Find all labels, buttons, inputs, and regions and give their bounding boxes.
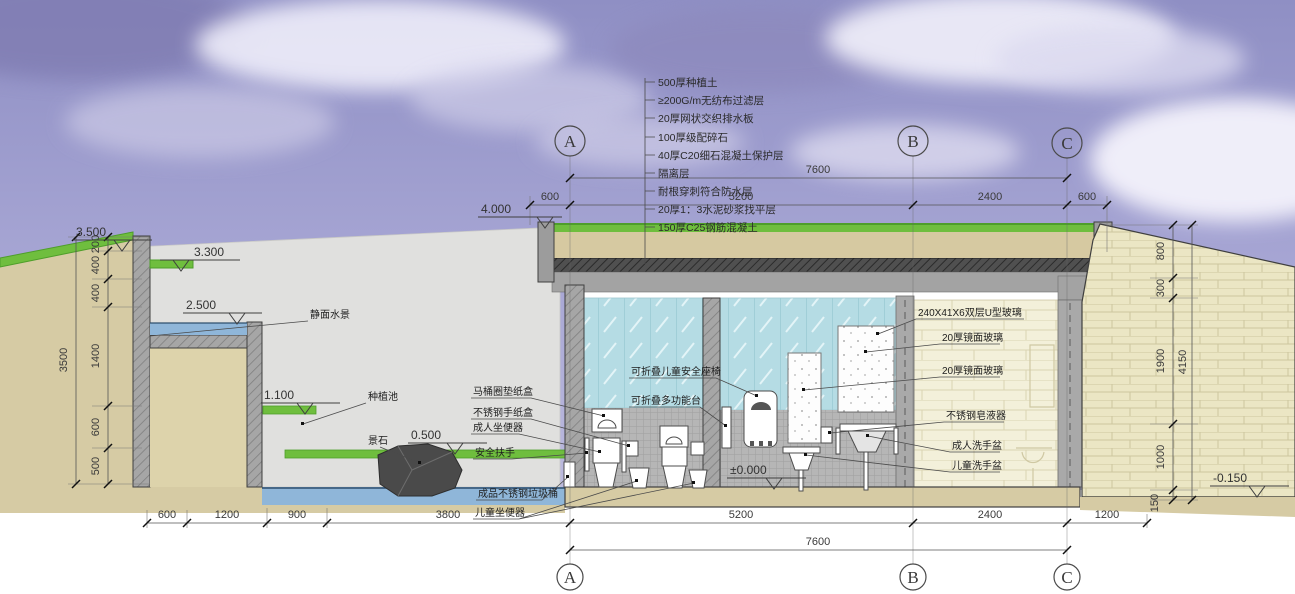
dim-top-total: 7600 <box>806 164 830 176</box>
seat-foot-1 <box>750 441 754 446</box>
dim-left-500: 500 <box>90 457 102 475</box>
floor-slab <box>565 487 1080 507</box>
level-label-0000: ±0.000 <box>730 463 767 477</box>
dim-right-total: 4150 <box>1177 350 1189 374</box>
label-child-seat: 可折叠儿童安全座椅 <box>631 365 721 378</box>
left-hill-soil <box>0 236 133 513</box>
grid-label-a-bottom: A <box>564 568 577 587</box>
dim-right-150: 150 <box>1149 494 1161 512</box>
dim-right-1000: 1000 <box>1155 445 1167 469</box>
dim-top-2400: 2400 <box>978 191 1002 203</box>
child-basin-rim <box>783 447 820 453</box>
architectural-section-svg: A B C A B C 600 5200 2400 600 7600 600 1… <box>0 0 1295 594</box>
roof-layer-4: 100厚级配碎石 <box>658 131 728 144</box>
child-basin-leg <box>799 470 803 491</box>
landscape-rock <box>378 444 462 496</box>
label-paper-box: 不锈钢手纸盒 <box>473 406 533 419</box>
label-grab-bar: 安全扶手 <box>475 446 515 459</box>
adult-toilet-tank <box>593 438 620 463</box>
glass-wall-panel-1 <box>584 298 703 408</box>
partition-wall <box>703 298 720 487</box>
label-adult-basin: 成人洗手盆 <box>952 439 1002 452</box>
still-water <box>150 323 247 335</box>
child-safety-seat-unit <box>744 391 777 447</box>
label-trash-bin: 成品不锈钢垃圾桶 <box>478 487 558 500</box>
dim-bot-total: 7600 <box>806 536 830 548</box>
level-label-1100: 1.100 <box>264 388 294 402</box>
label-adult-toilet: 成人坐便器 <box>473 421 523 434</box>
stone-clad-bay <box>914 300 1058 487</box>
child-toilet-1 <box>629 468 649 488</box>
roof-slab <box>540 258 1108 272</box>
paper-box <box>626 441 638 456</box>
roof-layer-6: 隔离层 <box>658 167 690 180</box>
roof-layer-1: 500厚种植土 <box>658 76 718 89</box>
roof-layer-7: 耐根穿刺符合防水层 <box>658 185 753 198</box>
label-child-basin: 儿童洗手盆 <box>952 459 1002 472</box>
flush-box <box>691 442 704 455</box>
grid-label-a-top: A <box>564 132 577 151</box>
grid-label-c-bottom: C <box>1061 568 1072 587</box>
grab-bar-left <box>585 438 589 471</box>
dim-bot-1200: 1200 <box>215 509 239 521</box>
label-mirror-2: 20厚镜面玻璃 <box>942 364 1003 377</box>
left-parapet <box>538 222 554 282</box>
trash-bin <box>564 462 575 487</box>
grid-label-b-bottom: B <box>907 568 918 587</box>
dim-top-600l: 600 <box>541 191 559 203</box>
dim-top-600r: 600 <box>1078 191 1096 203</box>
dim-bot-2400: 2400 <box>978 509 1002 521</box>
dim-left-600: 600 <box>90 418 102 436</box>
label-mirror-1: 20厚镜面玻璃 <box>942 331 1003 344</box>
label-child-toilet: 儿童坐便器 <box>475 506 525 519</box>
grab-bar-right <box>622 441 626 472</box>
grid-label-c-top: C <box>1061 134 1072 153</box>
label-still-water: 静面水景 <box>310 308 350 321</box>
water-channel-slab <box>150 335 262 348</box>
mirror-glass-2 <box>838 326 894 412</box>
roof-soil-layer <box>552 231 1095 258</box>
section-drawing-canvas: A B C A B C 600 5200 2400 600 7600 600 1… <box>0 0 1295 594</box>
dim-right-1900: 1900 <box>1155 349 1167 373</box>
level-label-3500: 3.500 <box>76 225 106 239</box>
dim-left-400a: 400 <box>90 256 102 274</box>
level-label-3300: 3.300 <box>194 245 224 259</box>
level-label-2500: 2.500 <box>186 298 216 312</box>
mirror-glass-1 <box>788 353 821 443</box>
level-label-0500: 0.500 <box>411 428 441 442</box>
roof-layer-2: ≥200G/m无纺布过滤层 <box>658 94 764 107</box>
roof-layer-5: 40厚C20细石混凝土保护层 <box>658 149 783 162</box>
roof-layer-3: 20厚网状交织排水板 <box>658 112 754 125</box>
dim-right-800: 800 <box>1155 242 1167 260</box>
roof-layer-8: 20厚1：3水泥砂浆找平层 <box>658 203 776 216</box>
adult-basin-leg <box>864 452 868 490</box>
dim-left-400b: 400 <box>90 284 102 302</box>
level-label-neg0150: -0.150 <box>1213 471 1247 485</box>
label-folding-table: 可折叠多功能台 <box>631 394 701 407</box>
dim-left-total: 3500 <box>58 348 70 372</box>
dim-bot-1200r: 1200 <box>1095 509 1119 521</box>
left-wall <box>133 236 150 487</box>
toilet-2-tank <box>662 447 687 466</box>
grid-label-b-top: B <box>907 132 918 151</box>
wall-at-grid-a <box>565 285 584 487</box>
dim-right-300: 300 <box>1155 279 1167 297</box>
roof-grass-layer <box>552 224 1095 232</box>
label-rock: 景石 <box>368 435 388 447</box>
dim-bot-5200: 5200 <box>729 509 753 521</box>
seat-foot-3 <box>768 441 772 446</box>
dim-bot-900: 900 <box>288 509 306 521</box>
seat-foot-2 <box>759 441 763 446</box>
dim-bot-600: 600 <box>158 509 176 521</box>
label-planter: 种植池 <box>368 390 398 403</box>
label-soap-dispenser: 不锈钢皂液器 <box>946 409 1006 422</box>
roof-layer-9: 150厚C25钢筋混凝土 <box>658 221 758 234</box>
level-label-4000: 4.000 <box>481 202 511 216</box>
soap-dispenser <box>821 427 832 443</box>
label-seat-paper-box: 马桶圈垫纸盒 <box>473 385 533 398</box>
water-channel-wall <box>247 322 262 487</box>
dim-bot-3800: 3800 <box>436 509 460 521</box>
wall-inner-soil <box>150 348 247 487</box>
roof-ceiling-band <box>552 272 1095 292</box>
label-u-glass: 240X41X6双层U型玻璃 <box>918 306 1022 319</box>
folding-table-folded <box>722 407 731 448</box>
dim-left-1400: 1400 <box>90 344 102 368</box>
